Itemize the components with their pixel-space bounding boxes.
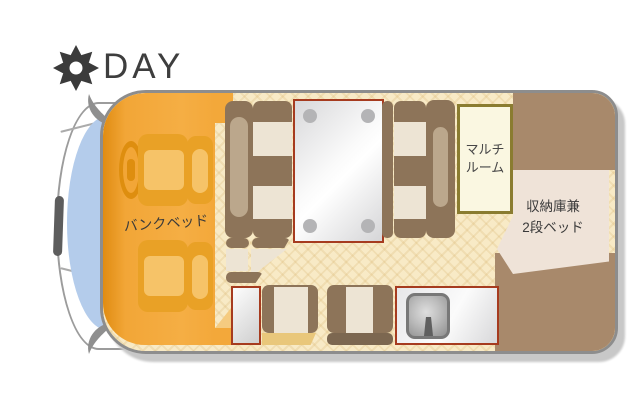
driver-seat-backrest bbox=[187, 136, 213, 204]
dinette-right-front-edge bbox=[382, 101, 393, 238]
sun-icon bbox=[52, 44, 100, 92]
table-leg bbox=[303, 109, 317, 123]
storage-bunk-label: 収納庫兼 2段ベッド bbox=[503, 196, 603, 238]
driver-seat-band bbox=[144, 150, 184, 190]
side-bench-top-bar-2 bbox=[252, 238, 290, 248]
cab-entry-step bbox=[215, 328, 231, 345]
passenger-seat-cushion bbox=[138, 240, 188, 312]
rear-storage-upper bbox=[513, 93, 615, 170]
side-bench-cushion-left bbox=[226, 249, 248, 271]
rear-bench-right bbox=[327, 285, 393, 333]
camper-body: バンクベッド bbox=[100, 90, 618, 354]
dinette-left-backrest-inset bbox=[230, 117, 248, 217]
rear-bench-left bbox=[262, 285, 318, 333]
multi-room-label-line2: ルーム bbox=[466, 159, 505, 177]
steering-wheel-hub bbox=[127, 159, 135, 181]
side-bench-top-bar-1 bbox=[226, 238, 249, 248]
storage-bunk-label-line1: 収納庫兼 bbox=[503, 196, 603, 217]
multi-room-label-line1: マルチ bbox=[465, 141, 504, 159]
rear-bench-left-cushion bbox=[274, 287, 308, 333]
dinette-table bbox=[293, 99, 384, 243]
rear-bench-left-step bbox=[262, 333, 316, 345]
multi-room: マルチ ルーム bbox=[457, 104, 513, 214]
passenger-seat-band bbox=[144, 256, 184, 296]
sink-icon bbox=[406, 293, 450, 339]
page-title: DAY bbox=[103, 47, 184, 87]
storage-bunk-label-line2: 2段ベッド bbox=[503, 217, 603, 238]
table-leg bbox=[361, 109, 375, 123]
camper-floorplan: DAY bbox=[0, 0, 640, 401]
passenger-seat-backrest bbox=[187, 242, 213, 310]
table-leg bbox=[361, 219, 375, 233]
dinette-left-cushions bbox=[253, 101, 292, 238]
dinette-right-cushions bbox=[394, 101, 426, 238]
rear-bench-right-cushion bbox=[346, 287, 373, 333]
driver-seat-cushion bbox=[138, 134, 188, 206]
faucet-icon bbox=[424, 317, 433, 336]
grille-accent bbox=[53, 196, 64, 256]
passenger-seat-backrest-band bbox=[192, 255, 208, 299]
dinette-right-backrest-inset bbox=[433, 127, 448, 207]
dinette-right-backrest bbox=[426, 100, 455, 238]
kitchen-counter bbox=[395, 286, 499, 345]
dinette-left-backrest bbox=[225, 101, 253, 238]
driver-seat-backrest-band bbox=[192, 149, 208, 193]
table-leg bbox=[303, 219, 317, 233]
rear-bench-right-base bbox=[327, 333, 393, 345]
entry-door bbox=[231, 286, 261, 345]
